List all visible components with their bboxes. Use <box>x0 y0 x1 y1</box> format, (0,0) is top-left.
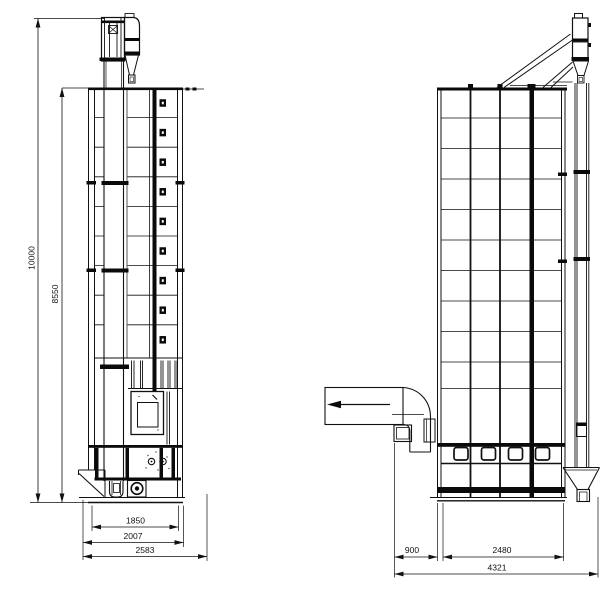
dimension-total-height: 10000 <box>27 19 105 503</box>
dim-label-base-width: 2583 <box>136 545 155 555</box>
dim-label-total-height: 10000 <box>27 246 37 270</box>
dimension-body-width: 2480 <box>443 503 564 561</box>
panel-latches <box>160 99 167 343</box>
head-discharge-funnel <box>573 61 589 76</box>
dimension-overall-width: 4321 <box>395 497 599 578</box>
elevator-trunk <box>100 61 129 481</box>
dim-label-body-width: 2480 <box>493 545 512 555</box>
air-flow-arrow <box>327 401 390 408</box>
tower-top-edge <box>88 88 183 91</box>
trunk-splice-band <box>102 181 129 185</box>
drawing-canvas: 10000 8550 1850 2007 2583 900 <box>0 0 614 594</box>
elevator-bracing <box>497 34 573 88</box>
elevator-column <box>572 14 592 468</box>
dim-label-body-height: 8550 <box>50 284 60 303</box>
air-duct <box>325 388 435 453</box>
dim-label-frame-width: 1850 <box>126 516 145 526</box>
elevator-head <box>100 14 141 84</box>
dim-label-overall-width: 4321 <box>488 563 507 573</box>
inner-column <box>153 90 157 392</box>
dimension-body-height: 8550 <box>50 88 96 503</box>
door-window <box>138 403 159 428</box>
technical-drawing: 10000 8550 1850 2007 2583 900 <box>0 0 614 594</box>
dimension-mid-width: 2007 <box>83 500 184 560</box>
discharge-outlets <box>454 448 550 461</box>
right-view <box>325 14 600 502</box>
intake-hopper <box>79 470 106 498</box>
fan-motor <box>128 481 147 498</box>
dimension-duct-offset: 900 <box>395 443 438 578</box>
tower-base <box>430 443 567 501</box>
trunk-splice-band <box>574 170 591 174</box>
boot-hopper <box>563 468 600 502</box>
head-discharge-funnel <box>125 55 139 75</box>
panel-row-lines <box>441 118 562 389</box>
tower-grid <box>437 84 567 497</box>
dim-label-mid-width: 2007 <box>124 531 143 541</box>
dimension-frame-width: 1850 <box>92 506 179 532</box>
tower-top-edge <box>437 88 567 91</box>
discharge-chute <box>110 481 124 497</box>
main-mullion <box>530 91 535 498</box>
dimension-base-width: 2583 <box>83 494 207 561</box>
dim-label-duct-offset: 900 <box>405 545 419 555</box>
control-door <box>131 392 170 445</box>
left-view <box>79 14 205 503</box>
